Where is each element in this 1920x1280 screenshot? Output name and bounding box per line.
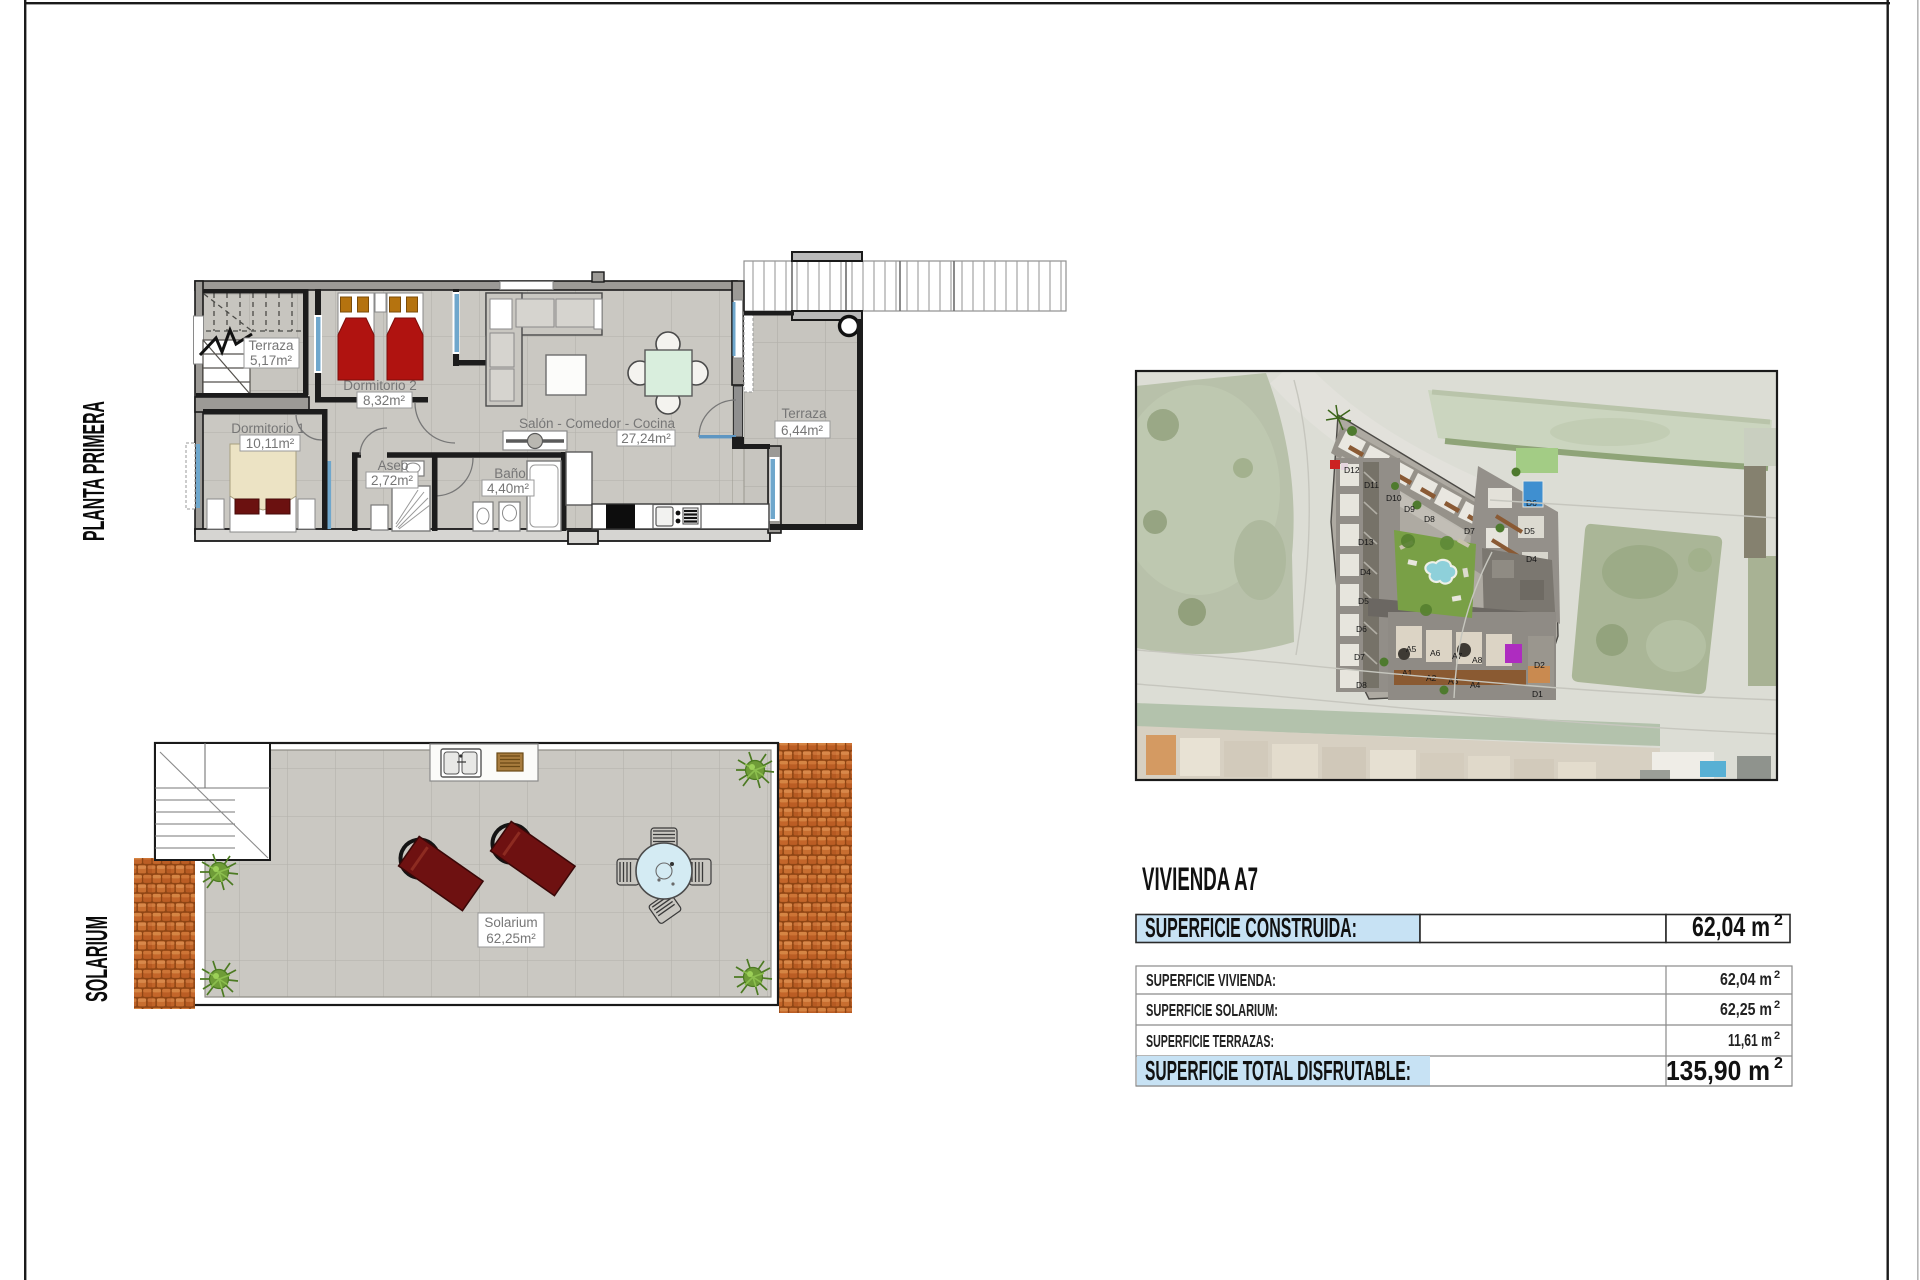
svg-text:D7: D7 [1354, 652, 1365, 662]
svg-text:A1: A1 [1402, 668, 1413, 678]
svg-text:2: 2 [1774, 999, 1780, 1011]
svg-text:D9: D9 [1404, 504, 1415, 514]
svg-text:D8: D8 [1424, 514, 1435, 524]
svg-text:2: 2 [1774, 969, 1780, 981]
svg-text:Salón - Comedor - Cocina: Salón - Comedor - Cocina [519, 416, 676, 431]
svg-text:PLANTA PRIMERA: PLANTA PRIMERA [76, 401, 111, 541]
svg-text:D10: D10 [1386, 493, 1402, 503]
svg-text:Aseo: Aseo [378, 458, 409, 473]
svg-text:A5: A5 [1406, 644, 1417, 654]
svg-text:Terraza: Terraza [781, 406, 827, 421]
svg-text:Dormitorio 1: Dormitorio 1 [231, 421, 305, 436]
svg-text:A6: A6 [1430, 648, 1441, 658]
svg-text:4,40m²: 4,40m² [487, 481, 530, 496]
svg-text:D5: D5 [1358, 596, 1369, 606]
svg-text:27,24m²: 27,24m² [621, 431, 671, 446]
svg-text:D7: D7 [1464, 526, 1475, 536]
svg-text:SUPERFICIE CONSTRUIDA:: SUPERFICIE CONSTRUIDA: [1145, 912, 1357, 943]
svg-text:D13: D13 [1358, 537, 1374, 547]
svg-text:Dormitorio 2: Dormitorio 2 [343, 378, 417, 393]
svg-text:D6: D6 [1356, 624, 1367, 634]
svg-text:62,04 m: 62,04 m [1720, 969, 1772, 989]
svg-text:A3: A3 [1448, 676, 1459, 686]
svg-text:D4: D4 [1526, 554, 1537, 564]
svg-text:62,25m²: 62,25m² [486, 931, 536, 946]
svg-text:62,04 m: 62,04 m [1692, 911, 1770, 942]
svg-text:5,17m²: 5,17m² [250, 353, 293, 368]
svg-text:D5: D5 [1524, 526, 1535, 536]
svg-text:6,44m²: 6,44m² [781, 423, 824, 438]
svg-text:D4: D4 [1360, 567, 1371, 577]
svg-text:Baño: Baño [494, 466, 526, 481]
svg-text:D1: D1 [1532, 689, 1543, 699]
svg-text:SOLARIUM: SOLARIUM [79, 916, 114, 1002]
svg-text:D12: D12 [1344, 465, 1360, 475]
svg-text:Terraza: Terraza [248, 338, 294, 353]
svg-text:D11: D11 [1364, 480, 1379, 490]
svg-text:D8: D8 [1356, 680, 1367, 690]
svg-text:11,61 m: 11,61 m [1728, 1030, 1772, 1050]
svg-text:D2: D2 [1534, 660, 1545, 670]
svg-text:2,72m²: 2,72m² [371, 473, 414, 488]
svg-text:SUPERFICIE SOLARIUM:: SUPERFICIE SOLARIUM: [1146, 1000, 1278, 1020]
svg-text:VIVIENDA A7: VIVIENDA A7 [1142, 861, 1258, 897]
svg-text:SUPERFICIE TERRAZAS:: SUPERFICIE TERRAZAS: [1146, 1031, 1274, 1051]
svg-text:SUPERFICIE VIVIENDA:: SUPERFICIE VIVIENDA: [1146, 970, 1276, 990]
svg-text:10,11m²: 10,11m² [246, 436, 295, 451]
svg-text:2: 2 [1774, 1030, 1780, 1042]
svg-text:8,32m²: 8,32m² [363, 393, 406, 408]
svg-text:2: 2 [1774, 912, 1783, 929]
svg-text:Solarium: Solarium [484, 915, 537, 930]
svg-text:A8: A8 [1472, 655, 1483, 665]
svg-text:135,90 m: 135,90 m [1666, 1055, 1770, 1086]
svg-text:62,25 m: 62,25 m [1720, 999, 1772, 1019]
svg-text:2: 2 [1774, 1055, 1783, 1072]
svg-text:SUPERFICIE TOTAL DISFRUTABLE:: SUPERFICIE TOTAL DISFRUTABLE: [1145, 1055, 1411, 1086]
